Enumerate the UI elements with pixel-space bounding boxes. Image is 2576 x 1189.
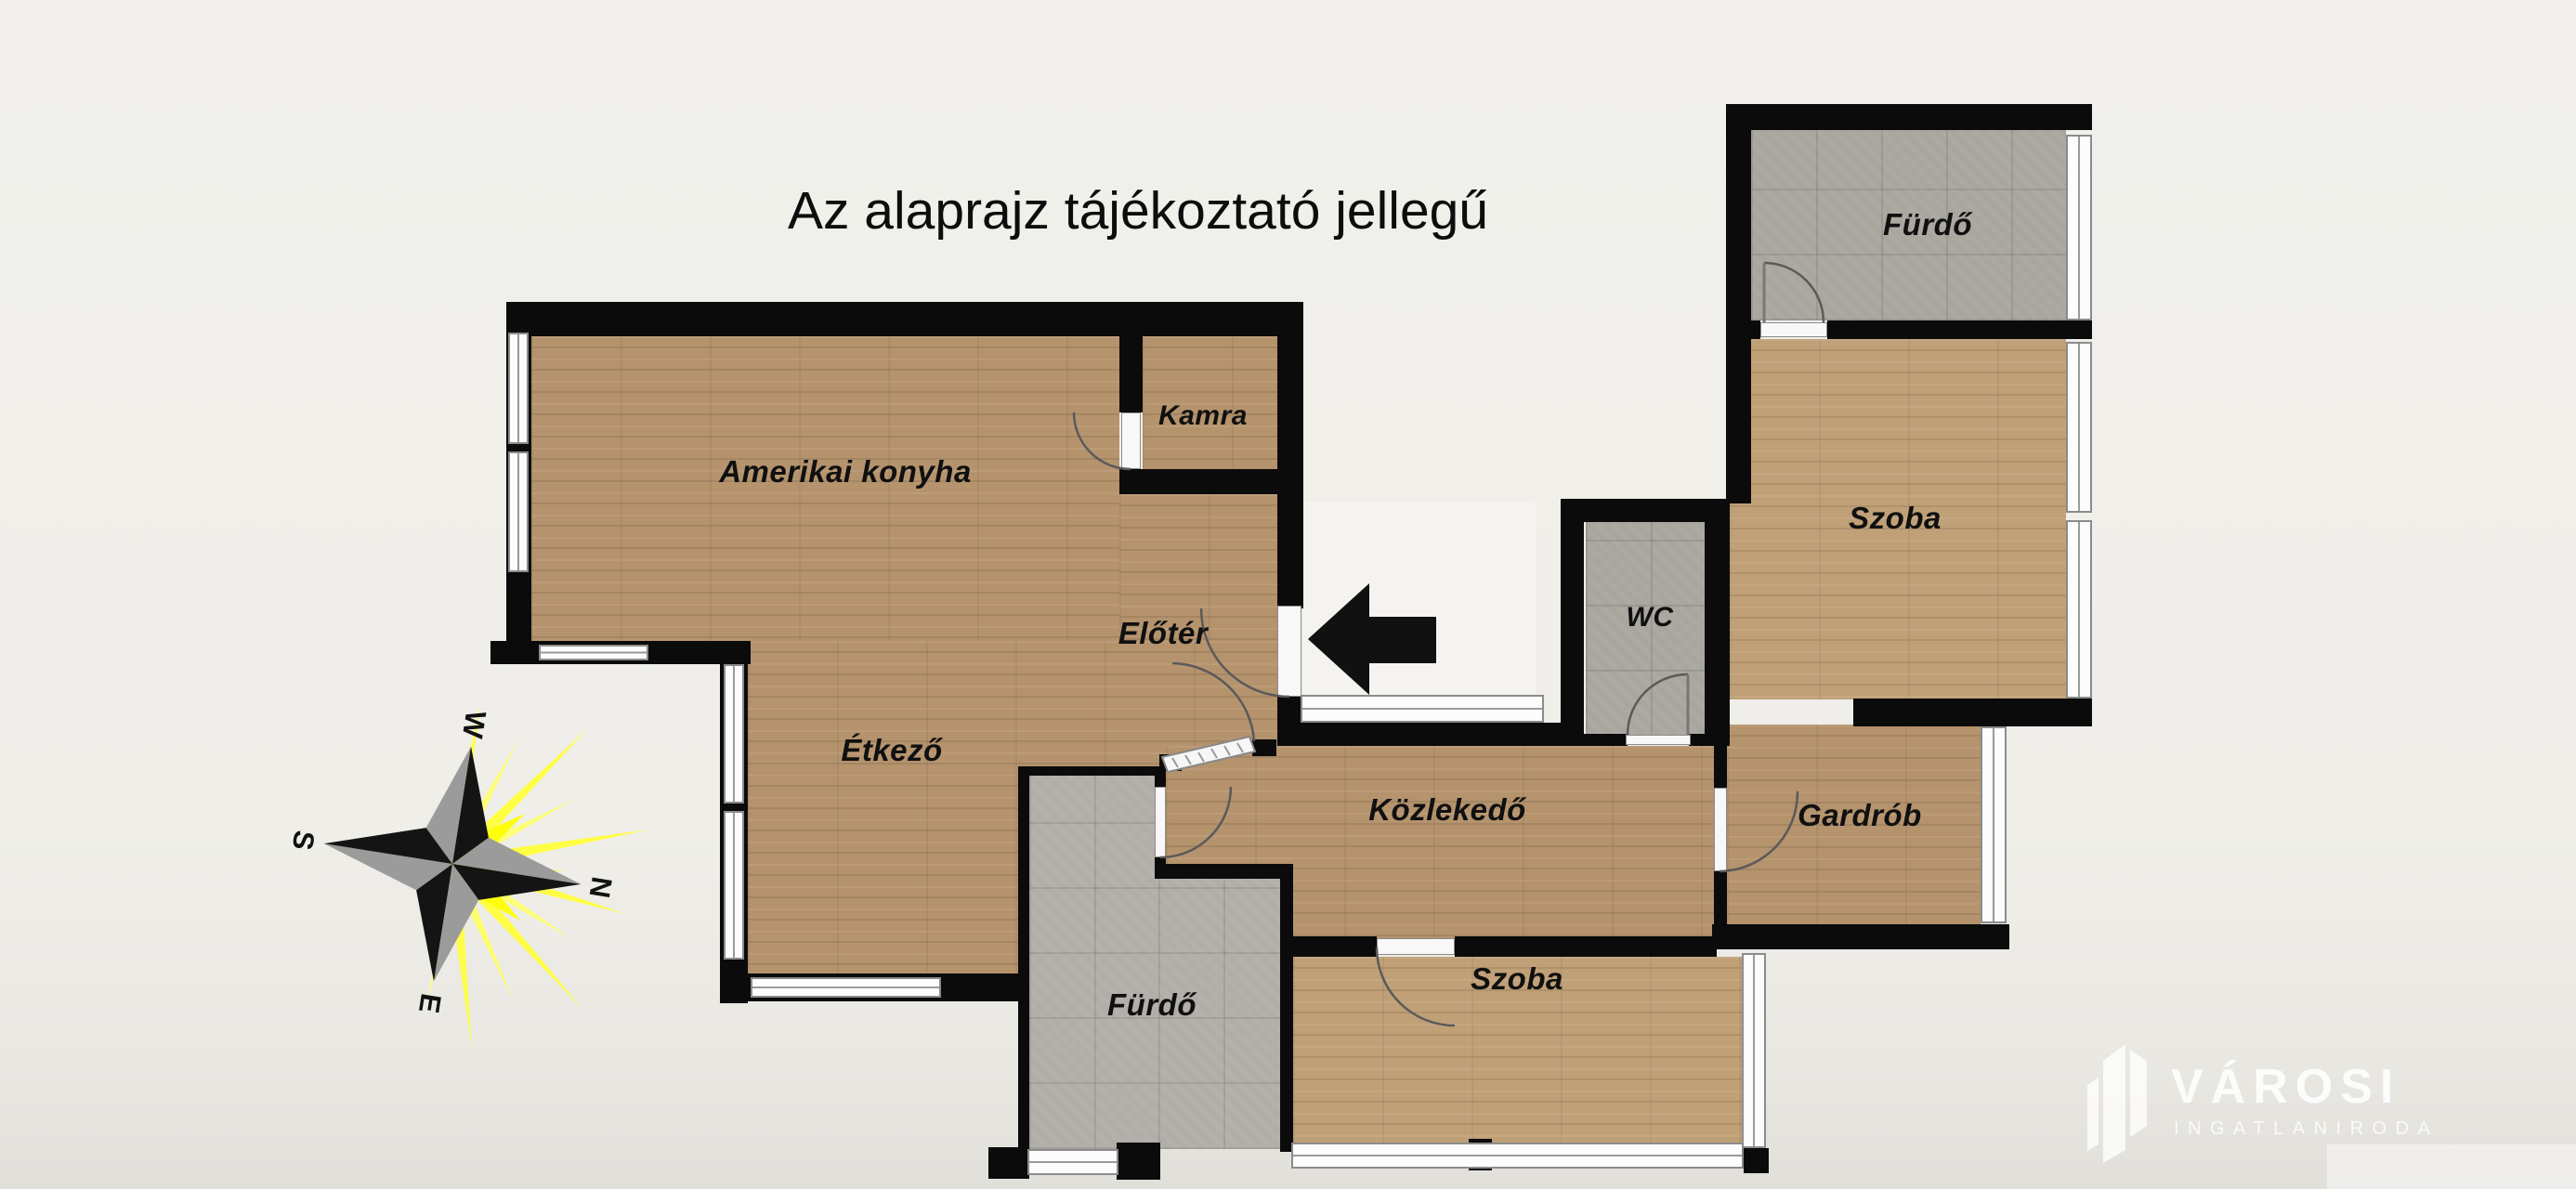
room-label-dining: Étkező	[841, 733, 942, 768]
room-label-foyer: Előtér	[1118, 616, 1209, 651]
brand-icon-block	[2130, 1050, 2147, 1137]
page-title: Az alaprajz tájékoztató jellegű	[788, 180, 1488, 242]
brand-name: VÁROSI	[2171, 1059, 2400, 1115]
brand-icon-tower	[2103, 1044, 2125, 1163]
compass-west-label: W	[456, 709, 492, 741]
entrance-door-arc	[1201, 608, 1289, 697]
room-label-bathroom-lower: Fürdő	[1107, 987, 1196, 1023]
compass-east-label: E	[412, 991, 448, 1015]
room-label-bathroom-upper: Fürdő	[1883, 207, 1972, 242]
room-label-hallway: Közlekedő	[1368, 792, 1526, 828]
room-label-wc: WC	[1627, 602, 1674, 634]
room-label-room-upper: Szoba	[1849, 501, 1942, 536]
plan-vector-overlay: N E S W	[0, 0, 2576, 1189]
bathroom-upper-door-arc	[1764, 263, 1824, 322]
room-label-room-lower: Szoba	[1471, 961, 1563, 997]
brand-icon-bar	[2087, 1078, 2099, 1151]
entrance-arrow-icon	[1308, 583, 1436, 695]
compass-rose-icon: N E S W	[264, 685, 641, 1039]
wc-door-arc	[1628, 674, 1688, 735]
room-lower-door-arc	[1377, 947, 1455, 1026]
compass-south-label: S	[286, 829, 321, 853]
brand-building-icon	[2087, 1044, 2147, 1163]
open-door-leaves	[1688, 263, 1764, 735]
dining-sliding-door-arc	[1172, 663, 1254, 741]
brand-tagline: INGATLANIRODA	[2174, 1118, 2439, 1140]
floor-plan-page: Az alaprajz tájékoztató jellegű	[0, 0, 2576, 1189]
compass-north-label: N	[583, 874, 619, 900]
bathroom-lower-door-arc	[1160, 787, 1231, 857]
room-label-wardrobe: Gardrób	[1798, 798, 1922, 833]
pantry-door-arc	[1074, 412, 1131, 469]
wardrobe-door-arc	[1720, 791, 1798, 871]
diagonal-door	[1162, 737, 1255, 772]
room-label-pantry: Kamra	[1158, 400, 1248, 432]
room-label-kitchen: Amerikai konyha	[719, 454, 972, 490]
